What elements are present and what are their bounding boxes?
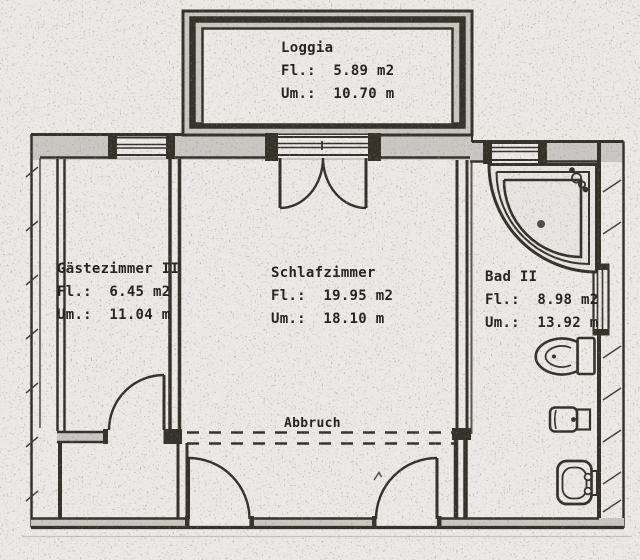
floorplan-scan: Loggia Fl.: 5.89 m2 Um.: 10.70 m Gästezi… (0, 0, 640, 560)
room-label-gaestezimmer: Gästezimmer II Fl.: 6.45 m2 Um.: 11.04 m (57, 261, 179, 323)
room-perimeter: Um.: 18.10 m (271, 311, 384, 327)
demolition-label: Abbruch (284, 416, 341, 431)
room-area: Fl.: 6.45 m2 (57, 284, 170, 300)
bottom-exterior-wall (31, 516, 624, 529)
room-name: Bad II (485, 269, 537, 285)
floorplan-drawing: Loggia Fl.: 5.89 m2 Um.: 10.70 m Gästezi… (0, 0, 640, 560)
drain-icon (537, 220, 545, 228)
room-name: Gästezimmer II (57, 261, 179, 277)
window-icon (483, 141, 547, 164)
guestroom-bottom-wall (57, 429, 182, 444)
bidet-icon (550, 408, 590, 432)
room-name: Loggia (281, 40, 333, 56)
room-perimeter: Um.: 10.70 m (281, 86, 394, 102)
window-icon (108, 134, 175, 159)
room-perimeter: Um.: 13.92 m (485, 315, 598, 331)
toilet-icon (536, 338, 595, 374)
room-area: Fl.: 19.95 m2 (271, 288, 393, 304)
room-name: Schlafzimmer (271, 265, 376, 281)
balcony-door-window-icon (265, 133, 381, 161)
room-perimeter: Um.: 11.04 m (57, 307, 170, 323)
room-label-schlafzimmer: Schlafzimmer Fl.: 19.95 m2 Um.: 18.10 m (271, 265, 393, 327)
room-area: Fl.: 8.98 m2 (485, 292, 598, 308)
washbasin-icon (558, 461, 598, 504)
room-area: Fl.: 5.89 m2 (281, 63, 394, 79)
